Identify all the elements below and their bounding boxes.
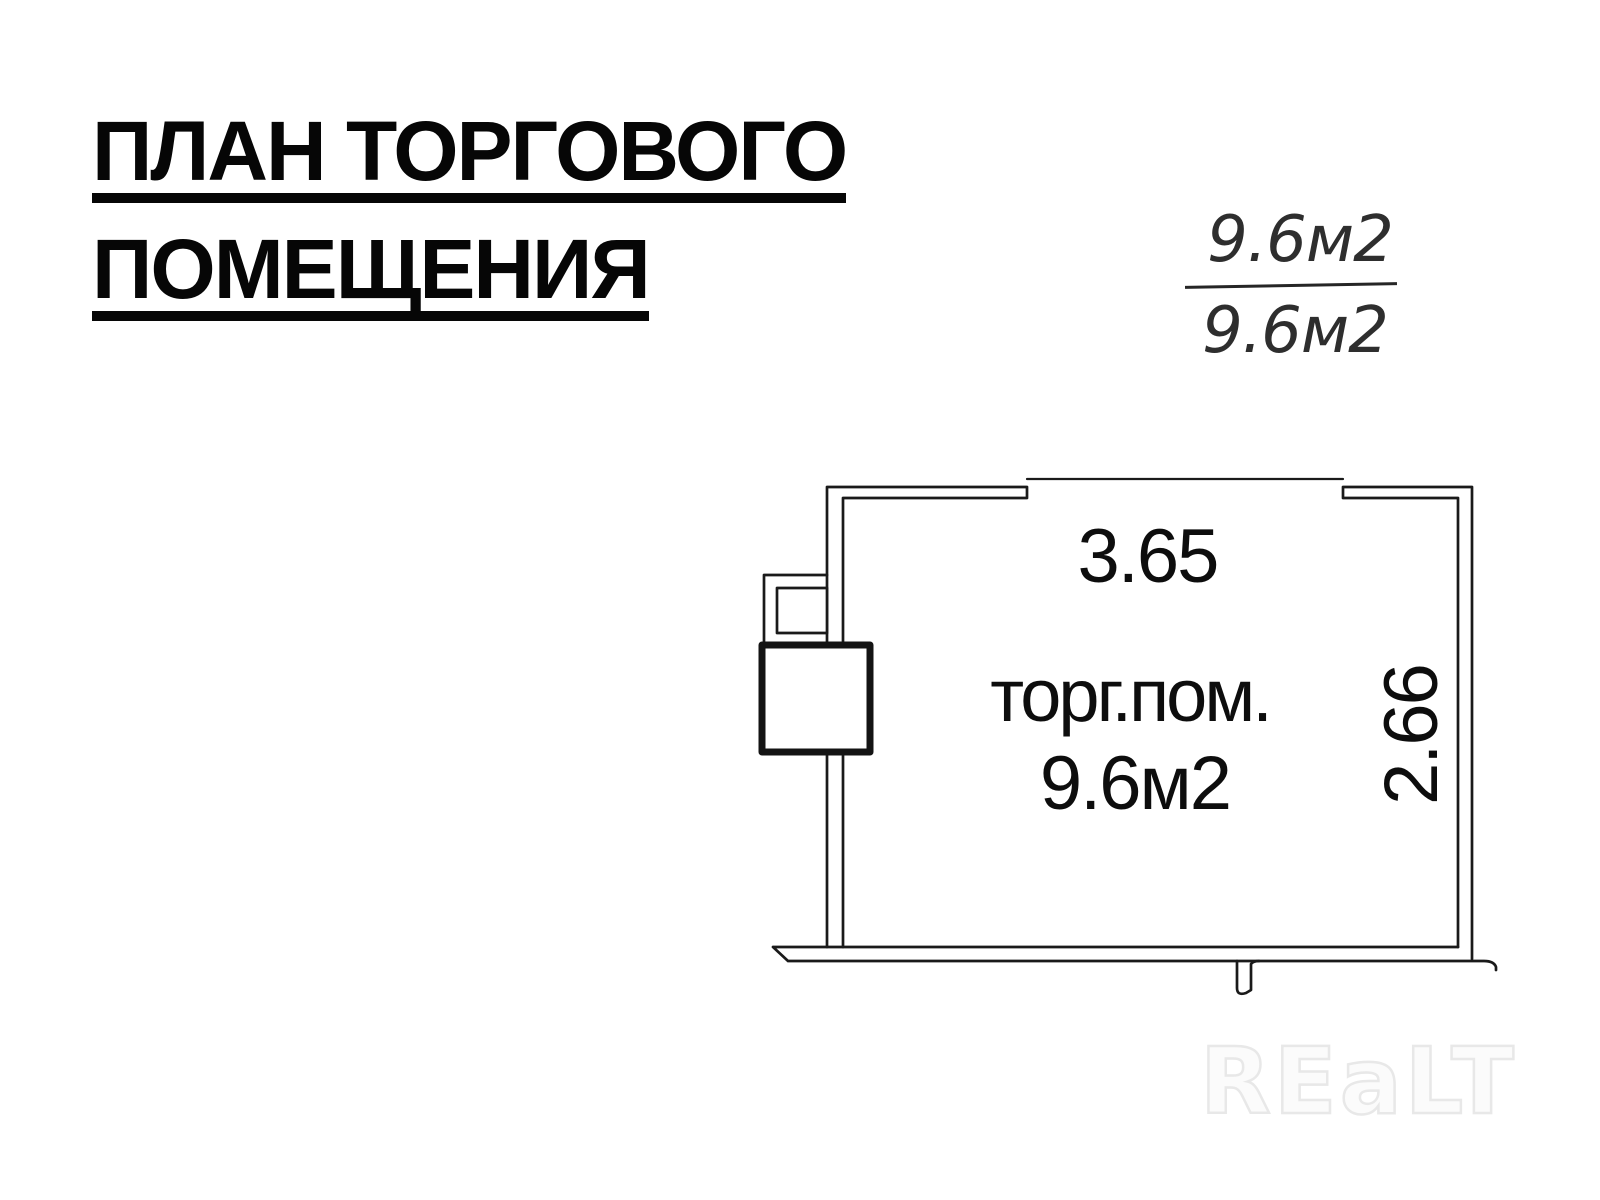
fraction-line bbox=[1185, 282, 1397, 289]
title-line-2: ПОМЕЩЕНИЯ bbox=[92, 227, 846, 321]
fraction-denominator: 9.6м2 bbox=[1190, 296, 1400, 366]
page: ПЛАН ТОРГОВОГО ПОМЕЩЕНИЯ 9.6м2 9.6м2 bbox=[0, 0, 1600, 1200]
floor-plan: 3.65 торг.пом. 9.6м2 2.66 bbox=[740, 460, 1510, 1020]
title-line-1-text: ПЛАН ТОРГОВОГО bbox=[92, 109, 846, 203]
pipe-stub bbox=[1237, 961, 1259, 994]
fraction-numerator: 9.6м2 bbox=[1195, 205, 1405, 275]
dimension-top: 3.65 bbox=[1040, 519, 1255, 595]
room-name-label: торг.пом. bbox=[930, 659, 1330, 733]
wall-bottom bbox=[773, 947, 1496, 970]
vent-shaft-box bbox=[762, 645, 870, 752]
title-line-2-text: ПОМЕЩЕНИЯ bbox=[92, 227, 649, 321]
title-block: ПЛАН ТОРГОВОГО ПОМЕЩЕНИЯ bbox=[92, 109, 846, 321]
title-line-1: ПЛАН ТОРГОВОГО bbox=[92, 109, 846, 203]
watermark-logo: REaLT bbox=[1200, 1036, 1517, 1128]
room-area-label: 9.6м2 bbox=[985, 746, 1285, 822]
vent-duct-inner bbox=[777, 588, 827, 633]
dimension-right: 2.66 bbox=[1372, 635, 1452, 835]
